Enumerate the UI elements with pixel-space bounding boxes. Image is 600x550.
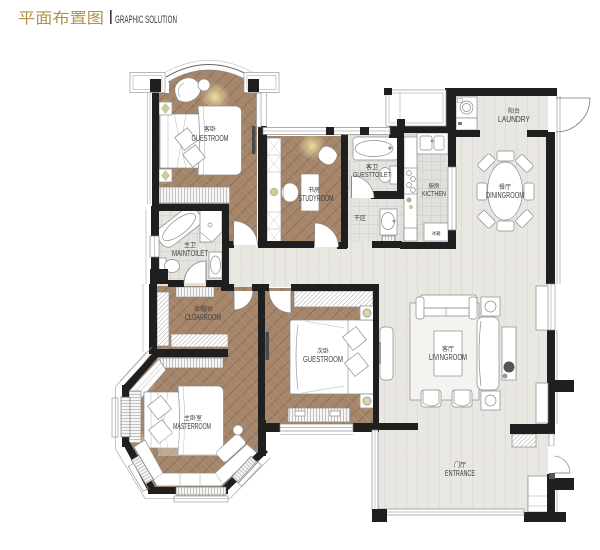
svg-text:STUDYROOM: STUDYROOM [299, 194, 334, 203]
svg-text:ENTRANCE: ENTRANCE [445, 469, 475, 478]
svg-text:客卧: 客卧 [204, 125, 216, 133]
svg-text:MASTERROOM: MASTERROOM [173, 422, 211, 431]
svg-text:门厅: 门厅 [454, 461, 466, 469]
svg-text:KICTHEN: KICTHEN [422, 191, 446, 198]
svg-text:厨房: 厨房 [428, 182, 440, 190]
svg-text:主卧室: 主卧室 [184, 414, 202, 422]
svg-text:阳台: 阳台 [508, 107, 520, 115]
svg-text:CLOAKROOM: CLOAKROOM [185, 313, 221, 322]
svg-text:MAINTOILET: MAINTOILET [172, 249, 208, 258]
svg-text:冰箱: 冰箱 [432, 230, 441, 237]
svg-text:GRAPHIC SOLUTION: GRAPHIC SOLUTION [115, 14, 177, 26]
svg-text:GUESTTOILET: GUESTTOILET [353, 172, 392, 179]
svg-text:餐厅: 餐厅 [499, 183, 511, 191]
svg-text:客卫: 客卫 [366, 163, 378, 171]
svg-text:平面布置图: 平面布置图 [18, 10, 104, 27]
svg-text:主卫: 主卫 [184, 241, 196, 249]
svg-text:DININGROOM: DININGROOM [486, 191, 524, 200]
svg-text:干区: 干区 [354, 215, 366, 222]
svg-text:衣帽间: 衣帽间 [194, 305, 212, 313]
svg-text:客厅: 客厅 [442, 345, 454, 353]
svg-text:LIVINGROOM: LIVINGROOM [429, 353, 467, 362]
svg-text:次卧: 次卧 [317, 347, 329, 355]
svg-text:LAUNDRY: LAUNDRY [498, 115, 531, 124]
svg-text:书房: 书房 [308, 186, 320, 194]
svg-text:GUESTROOM: GUESTROOM [192, 134, 229, 143]
svg-text:GUESTROOM: GUESTROOM [303, 355, 343, 364]
